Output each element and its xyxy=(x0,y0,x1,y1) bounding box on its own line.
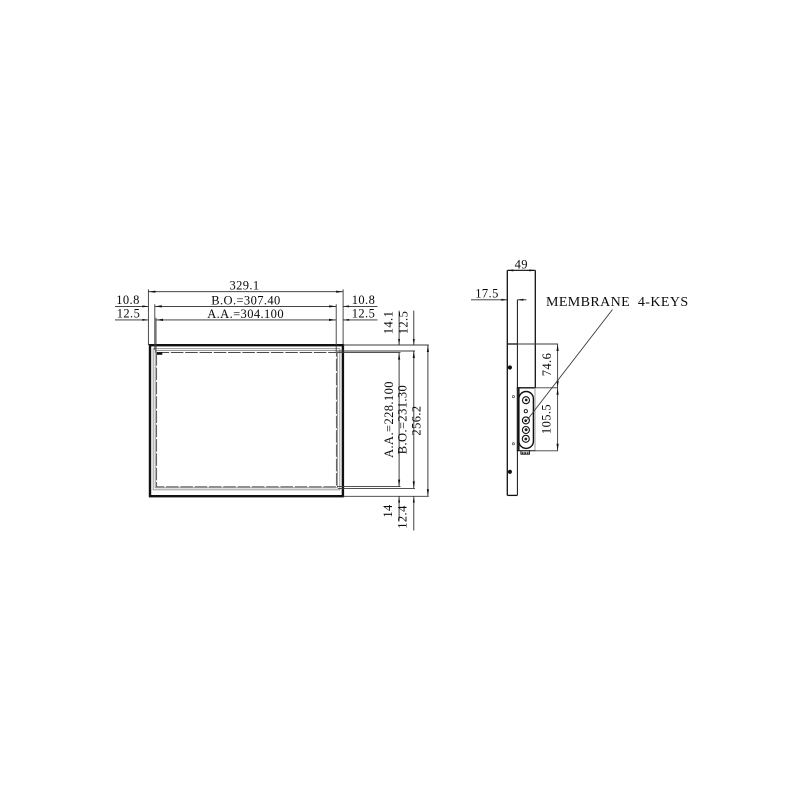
svg-text:B.O.=231.30: B.O.=231.30 xyxy=(396,385,410,454)
svg-text:A.A.=228.100: A.A.=228.100 xyxy=(382,381,396,458)
svg-text:105.5: 105.5 xyxy=(539,404,553,434)
svg-text:14: 14 xyxy=(381,504,395,518)
svg-text:A.A.=304.100: A.A.=304.100 xyxy=(207,307,284,321)
svg-text:10.8: 10.8 xyxy=(116,293,139,307)
svg-text:14.1: 14.1 xyxy=(382,311,396,334)
svg-text:49: 49 xyxy=(515,257,528,271)
svg-text:17.5: 17.5 xyxy=(475,286,498,300)
svg-text:74.6: 74.6 xyxy=(540,353,554,376)
svg-text:12.5: 12.5 xyxy=(117,307,140,321)
svg-text:10.8: 10.8 xyxy=(352,293,375,307)
svg-text:12.4: 12.4 xyxy=(395,505,409,529)
svg-text:12.5: 12.5 xyxy=(396,311,410,334)
svg-text:256.2: 256.2 xyxy=(410,405,424,435)
svg-text:12.5: 12.5 xyxy=(352,307,375,321)
svg-text:B.O.=307.40: B.O.=307.40 xyxy=(211,293,280,307)
svg-text:329.1: 329.1 xyxy=(229,279,259,293)
svg-text:MEMBRANE 4-KEYS: MEMBRANE 4-KEYS xyxy=(546,295,689,310)
